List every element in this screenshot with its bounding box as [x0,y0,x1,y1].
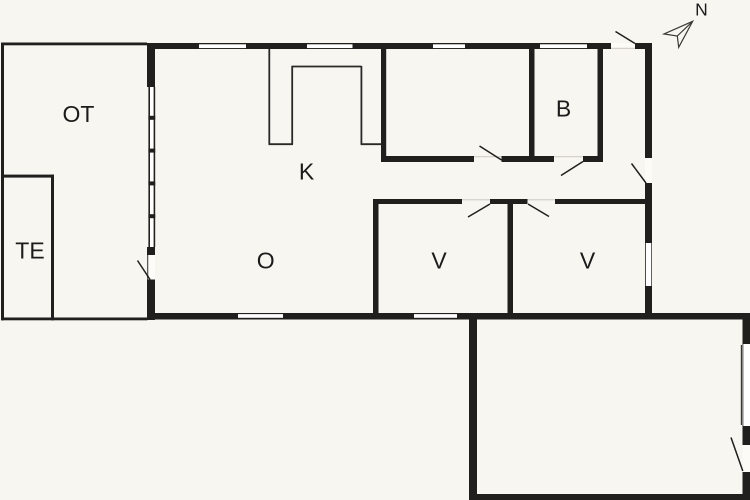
svg-text:O: O [257,247,275,273]
svg-text:N: N [695,0,708,20]
svg-text:V: V [580,247,596,273]
svg-text:B: B [556,96,571,122]
svg-text:K: K [299,158,315,184]
svg-text:OT: OT [63,101,95,127]
svg-text:V: V [431,247,447,273]
svg-text:TE: TE [15,238,44,264]
